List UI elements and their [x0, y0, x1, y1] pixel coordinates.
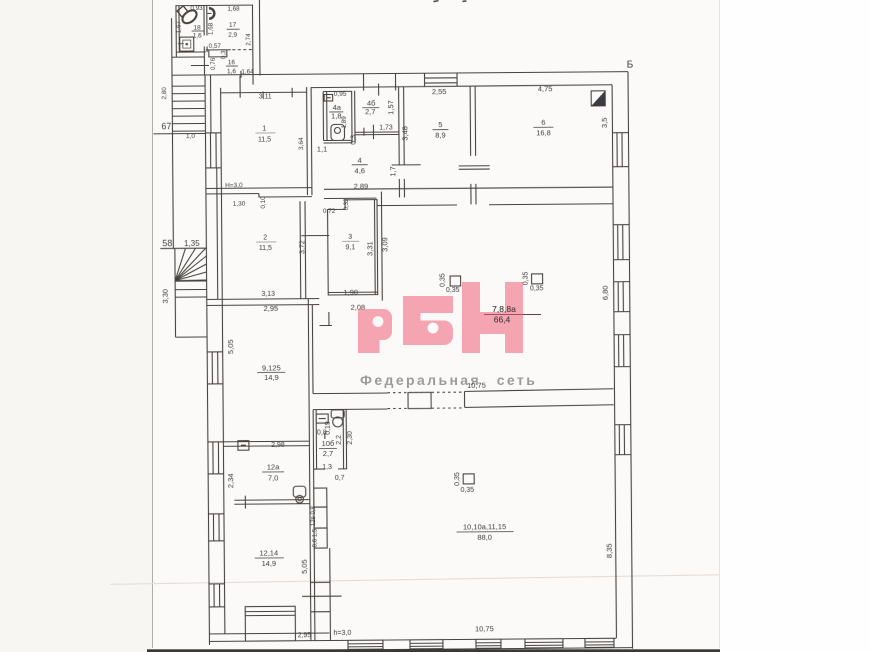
svg-text:1,3: 1,3: [322, 464, 332, 471]
svg-text:66,4: 66,4: [494, 315, 511, 325]
svg-text:0,10: 0,10: [260, 196, 267, 209]
svg-text:2,7: 2,7: [323, 449, 334, 458]
svg-text:Н=3,0: Н=3,0: [225, 182, 243, 189]
svg-text:0,6 1,5: 0,6 1,5: [313, 528, 319, 547]
svg-text:0,32: 0,32: [344, 198, 350, 210]
svg-text:2,34: 2,34: [226, 473, 235, 488]
svg-text:3,5: 3,5: [600, 118, 609, 129]
svg-text:10,75: 10,75: [475, 624, 494, 633]
svg-text:0,93: 0,93: [190, 5, 203, 12]
svg-text:14,9: 14,9: [261, 559, 276, 568]
svg-text:Федеральная сеть: Федеральная сеть: [360, 372, 537, 388]
svg-text:8,35: 8,35: [605, 543, 614, 558]
svg-text:2,7: 2,7: [365, 107, 376, 116]
svg-text:0,35: 0,35: [460, 487, 474, 494]
svg-text:9,125: 9,125: [262, 363, 281, 372]
svg-text:10,10а,11,15: 10,10а,11,15: [463, 522, 506, 531]
svg-text:1,1: 1,1: [317, 145, 328, 154]
svg-text:3,13: 3,13: [261, 291, 275, 298]
svg-text:Б: Б: [627, 60, 634, 71]
svg-text:1,6: 1,6: [193, 32, 202, 39]
svg-text:1,68: 1,68: [227, 6, 240, 13]
svg-text:1,89: 1,89: [341, 116, 348, 129]
svg-text:0,57: 0,57: [209, 43, 222, 50]
svg-text:1,90: 1,90: [343, 288, 358, 297]
svg-text:1: 1: [262, 125, 266, 132]
svg-text:0,35: 0,35: [446, 287, 460, 294]
svg-text:1,30: 1,30: [233, 201, 246, 208]
svg-text:7,8,8а: 7,8,8а: [492, 304, 516, 314]
svg-text:6,80: 6,80: [601, 285, 610, 300]
svg-text:12в 0,8: 12в 0,8: [311, 506, 317, 527]
svg-text:2,89: 2,89: [354, 182, 369, 191]
svg-text:17: 17: [229, 22, 237, 29]
svg-text:14,9: 14,9: [264, 373, 279, 382]
svg-text:5,05: 5,05: [300, 559, 309, 574]
svg-text:88,0: 88,0: [477, 533, 492, 542]
svg-text:3,11: 3,11: [259, 93, 272, 100]
svg-text:1,64: 1,64: [241, 69, 254, 76]
svg-text:1,35: 1,35: [184, 239, 200, 248]
svg-text:8,9: 8,9: [435, 131, 446, 140]
svg-text:3,09: 3,09: [380, 237, 389, 252]
svg-text:1,73: 1,73: [379, 124, 393, 131]
svg-text:0,3: 0,3: [220, 50, 227, 59]
svg-text:3,72: 3,72: [299, 240, 306, 254]
svg-text:0,35: 0,35: [440, 273, 447, 287]
svg-text:4: 4: [358, 156, 362, 165]
svg-text:0,3: 0,3: [350, 135, 357, 145]
svg-text:67: 67: [161, 121, 171, 131]
svg-text:3,31: 3,31: [365, 241, 374, 256]
svg-text:2,55: 2,55: [432, 87, 447, 96]
svg-text:0,35: 0,35: [530, 285, 544, 292]
svg-text:12,14: 12,14: [259, 548, 278, 557]
svg-text:1,67: 1,67: [176, 21, 183, 34]
svg-text:16,8: 16,8: [536, 128, 551, 137]
svg-text:3,30: 3,30: [161, 289, 170, 304]
svg-text:2,95: 2,95: [298, 632, 312, 639]
svg-text:2,9: 2,9: [228, 32, 237, 39]
svg-text:6: 6: [541, 118, 545, 127]
svg-text:5: 5: [438, 120, 442, 129]
svg-text:16: 16: [228, 59, 236, 66]
svg-text:0,72: 0,72: [323, 208, 336, 215]
svg-text:4,75: 4,75: [538, 84, 553, 93]
svg-text:1,0: 1,0: [186, 133, 195, 140]
svg-text:3,64: 3,64: [298, 137, 305, 150]
svg-text:2: 2: [263, 234, 267, 241]
svg-text:2,80: 2,80: [161, 87, 168, 100]
svg-text:0,95: 0,95: [334, 91, 347, 98]
svg-text:1,68: 1,68: [208, 22, 215, 35]
svg-text:0,35: 0,35: [523, 271, 530, 285]
svg-text:9,1: 9,1: [345, 244, 355, 251]
svg-text:11,5: 11,5: [259, 245, 272, 252]
svg-text:2,30: 2,30: [347, 431, 354, 445]
svg-text:10б: 10б: [322, 439, 335, 448]
svg-text:18: 18: [193, 24, 201, 31]
svg-text:58: 58: [162, 238, 172, 248]
svg-text:2,2: 2,2: [336, 435, 343, 445]
svg-text:5,05: 5,05: [226, 339, 235, 354]
svg-text:2,74: 2,74: [245, 33, 252, 46]
svg-text:2,95: 2,95: [263, 304, 278, 313]
svg-text:0,35: 0,35: [454, 472, 461, 486]
svg-text:11,5: 11,5: [258, 136, 271, 143]
svg-text:0,7: 0,7: [335, 475, 345, 482]
svg-text:3: 3: [348, 234, 352, 241]
svg-text:12а: 12а: [267, 462, 280, 471]
svg-text:1,57: 1,57: [386, 100, 395, 115]
svg-text:0,76: 0,76: [210, 57, 217, 70]
svg-text:4,6: 4,6: [355, 166, 366, 175]
svg-text:3,48: 3,48: [400, 126, 409, 141]
svg-text:2,98: 2,98: [271, 442, 285, 449]
svg-text:h=3,0: h=3,0: [334, 630, 352, 637]
svg-text:7,0: 7,0: [268, 473, 279, 482]
svg-text:1,7: 1,7: [388, 166, 397, 177]
svg-text:0,19: 0,19: [325, 421, 332, 435]
svg-text:1,6: 1,6: [227, 68, 236, 75]
